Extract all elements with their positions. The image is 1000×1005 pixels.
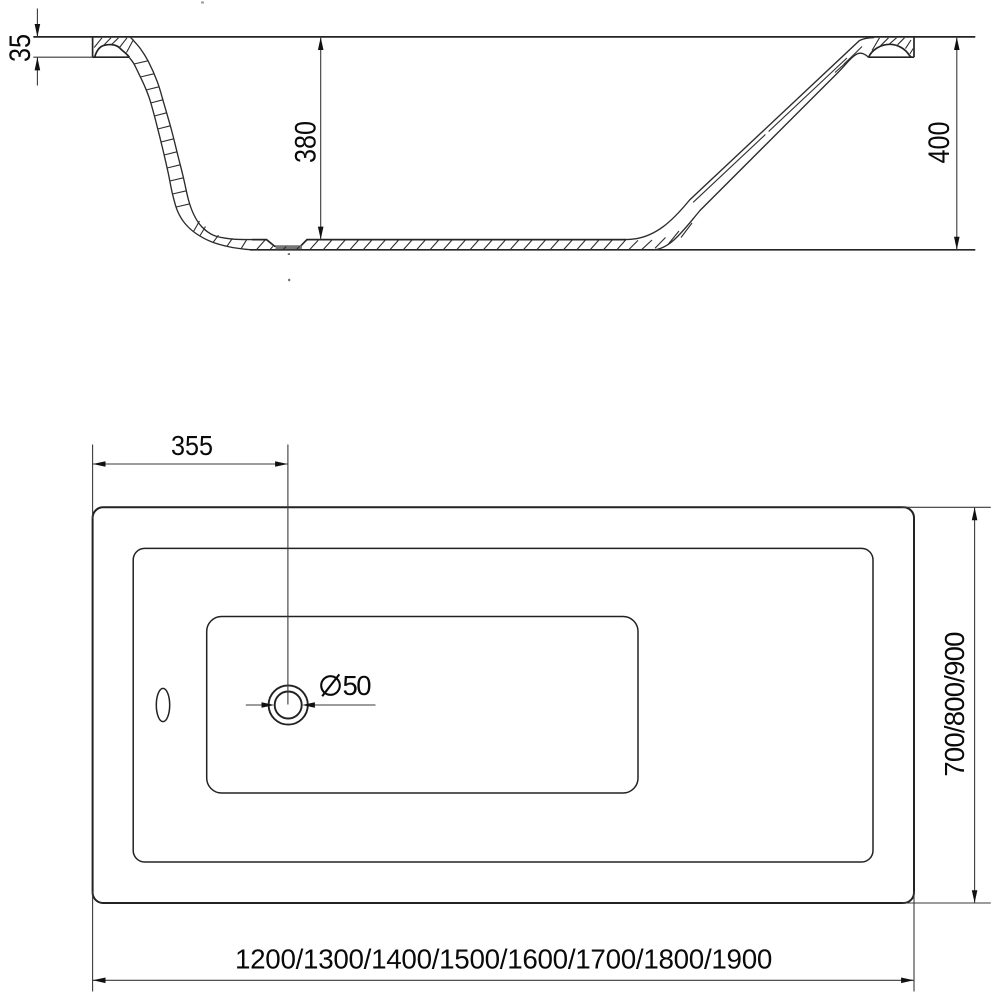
svg-text:700/800/900: 700/800/900	[939, 632, 970, 777]
svg-text:380: 380	[288, 121, 322, 163]
svg-text:35: 35	[3, 34, 37, 62]
svg-text:1200/1300/1400/1500/1600/1700/: 1200/1300/1400/1500/1600/1700/1800/1900	[235, 944, 772, 975]
svg-text:50: 50	[343, 670, 372, 701]
svg-text:400: 400	[922, 121, 956, 163]
svg-text:355: 355	[171, 430, 213, 462]
